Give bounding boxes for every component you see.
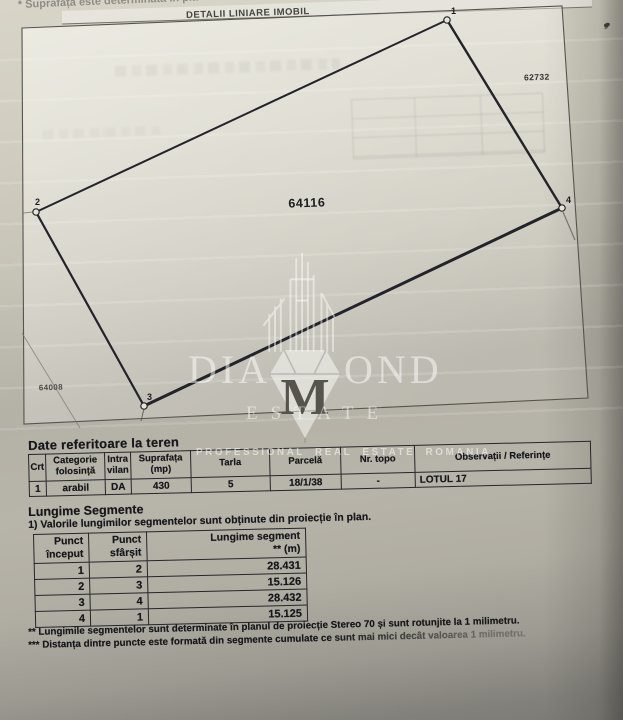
cadastral-plot-drawing: * Suprafața este determinată în pla DETA… bbox=[0, 0, 623, 436]
segments-table: PunctînceputPunctsfârșitLungime segment*… bbox=[33, 528, 308, 628]
table-cell: 1 bbox=[29, 481, 46, 496]
table-cell: 5 bbox=[191, 476, 270, 493]
survey-point-marker-3 bbox=[141, 403, 147, 409]
column-header: Categoriefolosință bbox=[46, 453, 106, 481]
table-cell: 1 bbox=[34, 562, 89, 579]
table-cell: 18/1/38 bbox=[270, 474, 341, 491]
column-header: Punctînceput bbox=[34, 533, 90, 563]
column-header: Punctsfârșit bbox=[88, 532, 147, 562]
column-header: Parcelă bbox=[269, 447, 341, 476]
survey-point-label-3: 3 bbox=[147, 392, 152, 402]
table-cell: 3 bbox=[90, 577, 148, 594]
table-cell: 4 bbox=[90, 593, 148, 610]
neighbor-parcel-left-label: 64008 bbox=[39, 383, 64, 393]
column-header: Intravilan bbox=[104, 452, 131, 480]
table-cell: DA bbox=[105, 479, 131, 495]
column-header: Suprafața(mp) bbox=[130, 451, 191, 479]
column-header: Nr. topo bbox=[340, 445, 415, 474]
table-cell: 2 bbox=[89, 561, 147, 578]
table-cell: 430 bbox=[131, 478, 191, 494]
column-header: Crt bbox=[29, 454, 47, 481]
table-cell: arabil bbox=[46, 480, 105, 496]
table-cell: LOTUL 17 bbox=[415, 468, 591, 487]
parcel-number-label: 64116 bbox=[288, 195, 326, 210]
survey-point-label-4: 4 bbox=[566, 195, 571, 205]
column-header: Observații / Referințe bbox=[414, 441, 591, 472]
survey-point-marker-2 bbox=[33, 209, 39, 215]
table-cell: - bbox=[341, 472, 415, 489]
plot-border-box bbox=[22, 6, 588, 424]
table-cell: 3 bbox=[35, 594, 90, 611]
column-header: Tarla bbox=[190, 449, 270, 478]
column-header: Lungime segment** (m) bbox=[146, 528, 306, 561]
scanned-cadastral-document: * Suprafața este determinată în pla DETA… bbox=[0, 0, 623, 720]
table-cell: 2 bbox=[35, 578, 90, 595]
survey-point-label-1: 1 bbox=[451, 6, 456, 16]
survey-point-marker-4 bbox=[559, 205, 565, 211]
neighbor-parcel-right-label: 62732 bbox=[524, 72, 550, 83]
survey-point-label-2: 2 bbox=[35, 197, 40, 207]
survey-point-marker-1 bbox=[444, 17, 450, 23]
